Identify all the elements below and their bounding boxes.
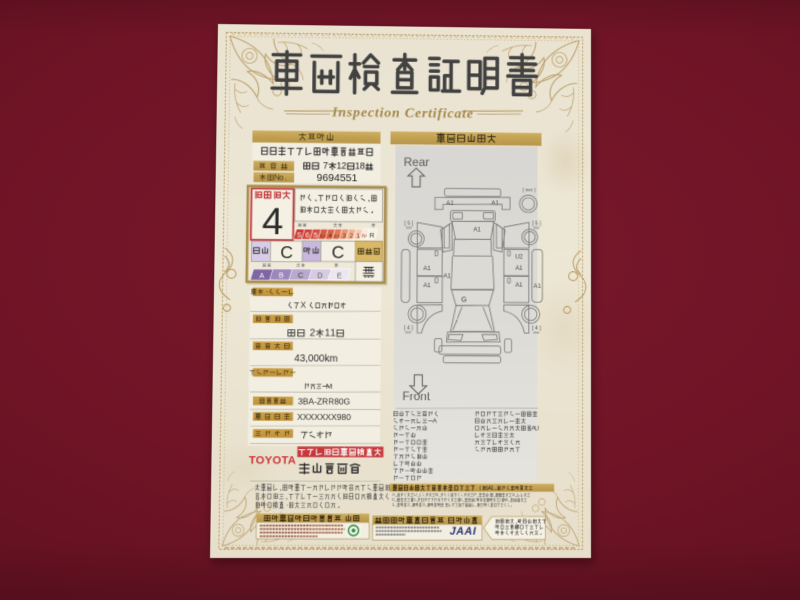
svg-text:B: B [435, 492, 438, 497]
svg-text:A1: A1 [491, 201, 499, 207]
svg-text:mm: mm [406, 226, 412, 230]
svg-text:S: S [512, 492, 515, 497]
svg-text:5: 5 [314, 232, 318, 240]
svg-text:43,000km: 43,000km [294, 353, 337, 364]
svg-text:JAAI: JAAI [450, 525, 477, 537]
svg-text:): ) [499, 497, 501, 502]
svg-text:A1: A1 [423, 283, 431, 289]
svg-text:Front: Front [402, 390, 431, 403]
svg-text:Inspection Certificate: Inspection Certificate [331, 105, 474, 121]
svg-text:1: 1 [392, 502, 395, 507]
svg-text:X: X [459, 497, 462, 502]
svg-text:Rear: Rear [404, 156, 430, 169]
svg-text:8: 8 [360, 161, 365, 171]
svg-text:9694551: 9694551 [317, 173, 358, 184]
svg-text:mm: mm [534, 226, 540, 230]
svg-text:X: X [505, 497, 508, 502]
svg-text:B: B [279, 271, 284, 280]
svg-text:XXXXXXX980: XXXXXXX980 [297, 412, 351, 422]
svg-text:mm: mm [534, 330, 540, 334]
svg-text:6: 6 [305, 232, 309, 240]
svg-text:D: D [412, 497, 416, 502]
svg-text:1: 1 [330, 328, 336, 339]
svg-text:(: ( [474, 497, 476, 502]
svg-text:U2: U2 [515, 254, 523, 260]
svg-text:M: M [326, 381, 332, 390]
svg-text:G: G [461, 297, 466, 304]
svg-text:[ mm ]: [ mm ] [523, 187, 536, 192]
svg-text:.: . [285, 173, 287, 182]
svg-text:7: 7 [323, 161, 328, 171]
svg-text:4: 4 [262, 200, 284, 242]
svg-text:TOYOTA: TOYOTA [249, 455, 296, 467]
svg-text:X: X [300, 301, 306, 310]
svg-text:C: C [298, 271, 304, 280]
svg-text:A1: A1 [473, 227, 481, 233]
svg-text:o: o [279, 173, 284, 182]
svg-text:A1: A1 [443, 274, 451, 280]
svg-text:E: E [337, 271, 342, 280]
svg-text:U: U [534, 425, 539, 432]
svg-text:2: 2 [310, 328, 316, 339]
svg-text:A: A [433, 418, 438, 425]
svg-text:2: 2 [341, 161, 346, 171]
svg-text:3BA-ZRR80G: 3BA-ZRR80G [298, 396, 350, 406]
svg-text:A: A [259, 271, 264, 280]
svg-text:(: ( [479, 486, 481, 492]
svg-text:A1: A1 [423, 266, 431, 272]
svg-text:A1: A1 [515, 266, 523, 272]
svg-text:R: R [369, 233, 374, 240]
svg-text:A1: A1 [515, 283, 523, 289]
svg-text:2: 2 [407, 502, 410, 507]
svg-text:C: C [332, 242, 345, 262]
svg-text:A1: A1 [534, 284, 542, 290]
svg-text:A1: A1 [446, 201, 454, 207]
svg-text:1: 1 [491, 486, 494, 492]
svg-text:mm: mm [405, 330, 411, 334]
svg-text:S: S [297, 232, 302, 240]
svg-text:3: 3 [422, 502, 425, 507]
svg-text:D: D [317, 271, 322, 280]
svg-text:C: C [280, 242, 293, 262]
